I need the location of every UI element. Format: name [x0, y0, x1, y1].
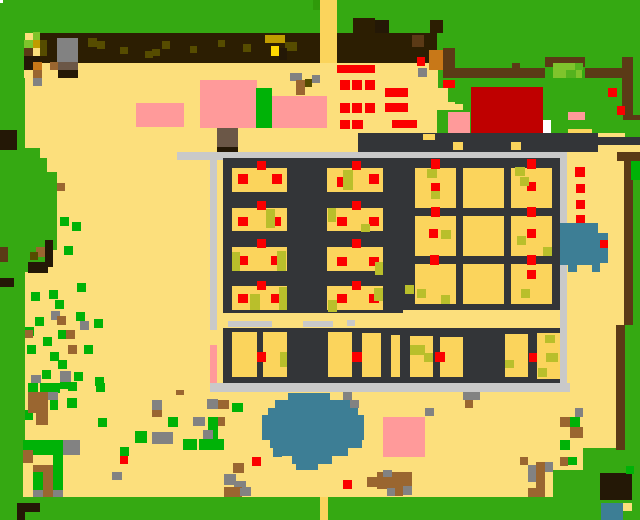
road-dash	[511, 142, 521, 150]
log	[0, 130, 17, 150]
map-light-green-bush	[24, 40, 33, 48]
map-red-item	[431, 159, 440, 169]
map-red-item	[431, 207, 440, 217]
path-vertical	[320, 0, 337, 63]
map-olive-patch	[546, 353, 558, 362]
map-bright-green-item	[568, 457, 577, 465]
map-debris-brown	[33, 70, 42, 78]
animal	[367, 477, 380, 487]
pond-center	[275, 400, 350, 408]
map-red-item	[340, 103, 350, 113]
map-pink-plot	[568, 112, 585, 120]
pink-plot	[136, 103, 184, 127]
map-bright-green-item	[120, 447, 129, 456]
map-olive-patch	[424, 353, 433, 362]
map-bright-green-item	[50, 400, 58, 410]
map-red-item	[337, 294, 347, 303]
pond-center	[292, 456, 332, 464]
map-red-item	[352, 103, 362, 113]
map-fence-brown	[24, 48, 33, 56]
map-gold	[265, 35, 285, 43]
map-red-item	[608, 88, 617, 97]
map-debris-brown	[152, 410, 162, 417]
map-olive-patch	[266, 209, 275, 228]
map-bright-green-item	[33, 472, 43, 490]
map-gray-rock	[403, 486, 412, 495]
map-gray-rock	[312, 75, 320, 83]
map-red-item	[575, 167, 585, 177]
map-bright-green-item	[570, 417, 580, 427]
path-gap-south	[320, 497, 328, 520]
fence	[520, 68, 545, 78]
map-bright-green-item	[84, 345, 93, 354]
map-olive-patch	[515, 167, 525, 176]
fence	[585, 68, 622, 78]
map-bright-green-item	[77, 283, 86, 292]
map-debris-brown	[520, 457, 528, 465]
map-sand	[403, 310, 560, 328]
map-olive-patch	[545, 335, 555, 343]
map-bright-green-item	[94, 319, 103, 328]
map-red-item	[257, 161, 266, 170]
map-bright-green-item	[58, 360, 67, 369]
map-debris-brown	[66, 330, 75, 339]
crate	[429, 50, 443, 70]
road	[358, 133, 598, 152]
map-red-item	[352, 352, 362, 362]
map-red-item	[429, 229, 438, 238]
map-debris-brown	[57, 316, 66, 325]
compound-wall	[210, 383, 570, 392]
map-bright-green-item	[76, 312, 85, 321]
map-olive-patch	[441, 295, 450, 304]
map-bright-green-item	[42, 370, 51, 379]
map-olive-patch	[361, 224, 370, 232]
map-red-item	[527, 255, 536, 265]
pink-plot	[200, 80, 257, 128]
map-sand	[430, 70, 438, 88]
map-gray-rock	[152, 400, 162, 410]
crop-row	[337, 65, 375, 73]
map-bright-green-item	[49, 290, 58, 299]
map-gray-rock	[31, 375, 41, 383]
road-dash	[453, 142, 463, 150]
map-light-gray-walkway	[303, 321, 333, 327]
dark-block	[353, 18, 375, 33]
map-very-dark-wood	[279, 48, 287, 60]
map-debris-brown	[560, 457, 568, 466]
map-fence-brown	[412, 35, 424, 47]
map-red-item	[257, 239, 266, 248]
map-bright-green-item	[67, 398, 77, 408]
cell	[463, 264, 504, 304]
map-dark-olive-dot	[97, 41, 105, 49]
map-red-item	[417, 57, 425, 66]
map-debris-brown	[233, 463, 244, 473]
map-gray-rock	[387, 488, 395, 496]
map-red-item	[120, 456, 128, 464]
map-bright-green-item	[27, 345, 36, 354]
road	[598, 137, 640, 145]
map-very-dark-wood	[24, 62, 33, 70]
map-bright-green-item	[43, 337, 52, 346]
map-olive-patch	[374, 288, 383, 301]
map-debris-brown	[68, 345, 77, 354]
map-light-gray-walkway	[347, 320, 355, 326]
map-sand	[23, 463, 33, 497]
pond-south	[601, 503, 623, 520]
map-olive-patch	[505, 360, 514, 368]
crop-row	[385, 103, 408, 112]
stall	[362, 333, 381, 377]
map-very-dark-wood	[0, 278, 14, 287]
map-red-item	[365, 80, 375, 90]
map-pink-plot	[210, 345, 217, 383]
bush	[575, 63, 583, 70]
map-water	[592, 263, 600, 272]
map-water	[568, 263, 577, 272]
crop-row	[392, 120, 417, 128]
map-gray-rock	[53, 490, 63, 497]
fence	[443, 48, 455, 78]
map-dark-olive-dot	[40, 40, 47, 56]
map-sand	[24, 70, 33, 78]
map-gray-rock	[425, 408, 434, 416]
map-red-item	[576, 200, 585, 209]
map-red-item	[617, 106, 625, 115]
compound-wall	[210, 160, 217, 330]
map-gray-rock	[152, 432, 173, 444]
map-gold	[33, 40, 40, 48]
map-debris-brown	[57, 183, 65, 191]
map-bright-green-item	[626, 466, 634, 474]
map-olive-patch	[410, 345, 425, 355]
map-bright-green-item	[68, 382, 77, 391]
compound-wall	[560, 160, 567, 383]
map-bright-green-item	[98, 418, 107, 427]
map-olive-patch	[521, 289, 530, 298]
map-red-item	[352, 120, 363, 129]
map-gray-rock	[33, 78, 42, 86]
stump	[217, 128, 238, 147]
map-taupe-stump	[58, 62, 78, 70]
map-olive-patch	[328, 300, 337, 312]
pond-east	[560, 223, 598, 265]
map-olive-patch	[520, 177, 529, 186]
map-bright-green-item	[232, 403, 243, 412]
map-dark-olive-dot	[218, 40, 225, 47]
map-olive-patch	[250, 294, 260, 310]
map-red-item	[337, 217, 347, 226]
map-bright-green-item	[199, 439, 224, 450]
map-debris-brown	[560, 417, 570, 427]
fence	[455, 68, 512, 78]
map-olive-patch	[431, 191, 440, 199]
map-water	[273, 448, 282, 457]
pink-plot	[448, 112, 470, 135]
map-very-dark-wood	[58, 70, 78, 78]
map-bright-green-item	[560, 440, 570, 450]
map-red-item	[369, 174, 379, 184]
map-dark-olive-dot	[162, 41, 170, 49]
map-red-item	[352, 80, 362, 90]
map-gray-rock	[80, 321, 89, 330]
map-bright-green-item	[183, 439, 197, 450]
white-dot	[0, 0, 3, 3]
map-olive-patch	[441, 230, 451, 239]
fence	[512, 63, 520, 78]
red-building	[471, 87, 543, 135]
map-red-item	[529, 353, 537, 362]
map-red-item	[257, 281, 266, 290]
pond-center	[288, 393, 330, 400]
map-red-item	[340, 120, 350, 129]
dark-block	[375, 20, 389, 33]
map-olive-patch	[517, 236, 526, 245]
map-dark-olive-dot	[190, 46, 197, 53]
map-red-item	[352, 201, 361, 210]
map-red-item	[576, 184, 585, 193]
map-bright-green-item	[64, 246, 73, 255]
map-debris-brown	[176, 390, 184, 395]
map-red-item	[352, 161, 361, 170]
pond-center	[262, 415, 364, 440]
map-gray-rock	[418, 68, 427, 77]
map-gray-rock	[48, 392, 58, 400]
map-bright-green-item	[631, 161, 640, 180]
map-gray-rock	[545, 462, 553, 472]
map-red-item	[352, 281, 361, 290]
map-olive-patch	[405, 285, 414, 294]
wood-column	[616, 325, 625, 450]
stall	[328, 332, 352, 377]
map-red-item	[238, 174, 248, 184]
path-edge-dark	[313, 0, 320, 10]
bush	[566, 70, 576, 78]
map-olive-patch	[417, 289, 426, 298]
hill	[25, 148, 40, 158]
map-very-dark-wood	[28, 262, 48, 273]
map-bright-green-item	[168, 417, 178, 427]
map-olive-patch	[280, 352, 287, 367]
map-red-item	[576, 215, 585, 223]
map-sand	[430, 88, 448, 102]
cell	[463, 168, 504, 208]
map-gray-rock	[112, 472, 122, 480]
map-gray-rock	[383, 470, 392, 477]
boulder	[57, 38, 78, 62]
map-olive-patch	[232, 252, 240, 271]
map-olive-patch	[375, 262, 383, 275]
map-red-item	[435, 352, 445, 362]
dark-structure	[600, 473, 632, 500]
tree-trunk	[536, 462, 545, 497]
map-debris-brown	[50, 62, 58, 70]
wood-column	[624, 160, 633, 325]
hill	[25, 158, 47, 172]
map-bright-green-item	[96, 383, 105, 392]
dark-block	[430, 20, 443, 33]
map-olive-patch	[328, 208, 336, 222]
map-red-item	[238, 217, 248, 226]
map-bright-green-item	[35, 317, 44, 326]
map-light-gray-walkway	[228, 321, 272, 327]
map-gray-rock	[60, 371, 71, 382]
map-red-item	[369, 217, 379, 226]
map-red-item	[340, 80, 350, 90]
map-bright-green-item	[55, 300, 64, 309]
crop-row	[385, 88, 408, 97]
map-debris-brown	[395, 489, 403, 496]
tree-trunk	[296, 80, 305, 95]
map-dark-olive-dot	[152, 49, 160, 56]
stall	[505, 334, 528, 377]
road-dash	[423, 134, 435, 140]
map-red-item	[430, 255, 439, 265]
map-debris-brown	[465, 400, 473, 408]
map-red-item	[352, 239, 361, 248]
map-bright-green-item	[53, 455, 63, 490]
map-gray-rock	[575, 408, 583, 417]
map-dark-olive-dot	[30, 252, 38, 260]
map-red-item	[443, 80, 455, 88]
map-debris-brown	[528, 488, 536, 497]
map-fence-brown	[0, 247, 8, 262]
map-debris-brown	[28, 392, 48, 413]
cell	[463, 216, 504, 256]
pond-center	[278, 448, 348, 456]
map-bright-green-item	[74, 372, 83, 381]
map-olive-patch	[427, 169, 437, 178]
map-gray-rock	[63, 440, 80, 455]
map-olive-patch	[543, 247, 552, 256]
map-red-item	[257, 201, 266, 210]
map-red-item	[238, 294, 248, 303]
map-gray-rock	[463, 392, 480, 400]
map-debris-brown	[218, 400, 229, 409]
pink-plot	[272, 96, 327, 128]
map-bright-green-item	[31, 292, 40, 301]
map-gray-rock	[350, 400, 359, 408]
map-light-green-bush	[33, 32, 40, 40]
map-olive-patch	[343, 170, 353, 190]
map-red-item	[365, 103, 375, 113]
map-olive-patch	[279, 287, 287, 310]
pond-center	[270, 440, 362, 448]
map-red-item	[527, 270, 536, 279]
map-dark-olive-dot	[88, 38, 97, 47]
map-dark-olive-dot	[120, 47, 128, 54]
map-orange-crate	[33, 62, 42, 70]
map-bright-green-item	[60, 217, 69, 226]
map-red-item	[252, 457, 261, 466]
map-red-item	[527, 229, 536, 238]
log	[17, 503, 40, 512]
map-sand	[623, 503, 632, 511]
map-dark-olive-dot	[305, 79, 312, 87]
map-gray-rock	[193, 417, 205, 426]
map-debris-brown	[25, 330, 33, 338]
map-sand	[455, 104, 463, 110]
map-fence-brown	[623, 115, 640, 120]
map-sand	[430, 102, 455, 110]
green-plot	[256, 88, 272, 128]
pond-center	[296, 464, 318, 470]
game-map[interactable]	[0, 0, 640, 520]
map-gray-rock	[33, 490, 43, 497]
map-red-item	[343, 480, 352, 489]
stall	[232, 332, 257, 377]
map-dark-olive-dot	[243, 44, 251, 52]
log	[17, 512, 25, 520]
map-gray-rock	[240, 488, 248, 496]
hill	[25, 172, 57, 250]
map-red-item	[600, 240, 608, 248]
map-debris-brown	[36, 413, 48, 425]
map-gray-rock	[343, 392, 352, 400]
stall	[391, 335, 400, 377]
map-debris-brown	[570, 427, 583, 438]
pink-plot	[383, 417, 425, 457]
map-bright-green-item	[135, 431, 147, 443]
map-debris-brown	[23, 450, 33, 463]
map-bright-yellow	[271, 46, 279, 56]
map-gray-rock	[207, 399, 218, 409]
map-red-item	[272, 174, 282, 184]
map-red-item	[527, 159, 536, 169]
map-red-item	[257, 352, 266, 362]
map-red-item	[527, 207, 536, 217]
pond-east	[598, 233, 608, 263]
map-olive-patch	[538, 368, 547, 377]
map-red-item	[337, 257, 347, 266]
map-sand	[598, 145, 640, 152]
map-bright-green-item	[28, 383, 38, 392]
grass-left-column	[0, 33, 25, 520]
map-bright-green-item	[72, 222, 81, 231]
map-olive-patch	[277, 251, 286, 271]
